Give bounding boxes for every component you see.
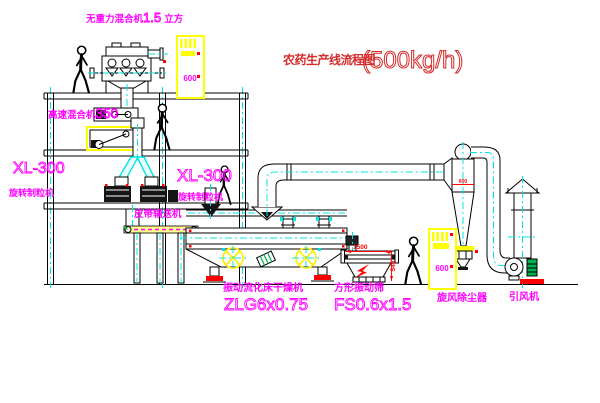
label-screen-name: 方形振动筛 [334, 281, 384, 294]
floor-slab-mid [44, 150, 248, 156]
floor-slab-top [44, 93, 248, 99]
person-figure [73, 46, 89, 92]
label-cyclone: 旋风除尘器 [436, 291, 488, 304]
process-flow-diagram: 600 [0, 0, 600, 403]
diagram-drawing: 600 [0, 0, 600, 403]
induced-draft-fan [505, 258, 544, 284]
rail-connector [316, 216, 332, 228]
cabinet-code: 600 [183, 74, 197, 83]
person-figure [405, 237, 421, 283]
conveyor-leg [157, 233, 163, 283]
dryer-leg [203, 267, 226, 282]
cyclone-outlet-duct [470, 147, 516, 273]
fan-base [520, 279, 544, 284]
screen-length-dim: 1500 [353, 244, 368, 251]
label-granulator-left-model: XL-300 [13, 160, 65, 177]
weightless-mixer [88, 43, 168, 93]
label-granulator-left-name: 旋转制粒机 [8, 187, 54, 198]
person-figure [154, 104, 169, 149]
title-capacity: (500kg/h) [362, 47, 463, 74]
rail-connector [280, 216, 296, 228]
label-weightless-mixer: 无重力混合机1.5立方 [85, 10, 184, 25]
duct-reducer [444, 158, 452, 191]
label-granulator-right-model: XL-300 [177, 166, 232, 185]
label-dryer-name: 振动流化床干燥机 [223, 281, 303, 294]
cabinet-code: 600 [435, 264, 449, 273]
control-cabinet-right: 600 [429, 229, 456, 289]
exhaust-duct [258, 164, 452, 216]
label-belt-conveyor: 皮带输送机 [133, 208, 182, 220]
conveyor-leg [134, 233, 140, 283]
granulator-aux-unit [168, 190, 178, 202]
fan-motor [527, 259, 537, 276]
label-fan: 引风机 [509, 290, 539, 303]
label-dryer-model: ZLG6x0.75 [224, 295, 308, 314]
control-cabinet-top: 600 [177, 36, 204, 98]
y-chute [118, 157, 155, 179]
label-screen-model: FS0.6x1.5 [334, 295, 412, 314]
screen-height-dim: 545 [390, 260, 397, 271]
label-high-speed-mixer: 高速混合机350 [48, 106, 118, 121]
conveyor-leg [178, 233, 184, 283]
diagram-title: 农药生产线流程图 (500kg/h) [282, 47, 463, 74]
mixer-drop-pipe [131, 118, 144, 160]
dryer-leg [311, 267, 334, 281]
granulator-left [104, 177, 131, 202]
label-granulator-right-name: 旋转制粒机 [177, 191, 223, 202]
